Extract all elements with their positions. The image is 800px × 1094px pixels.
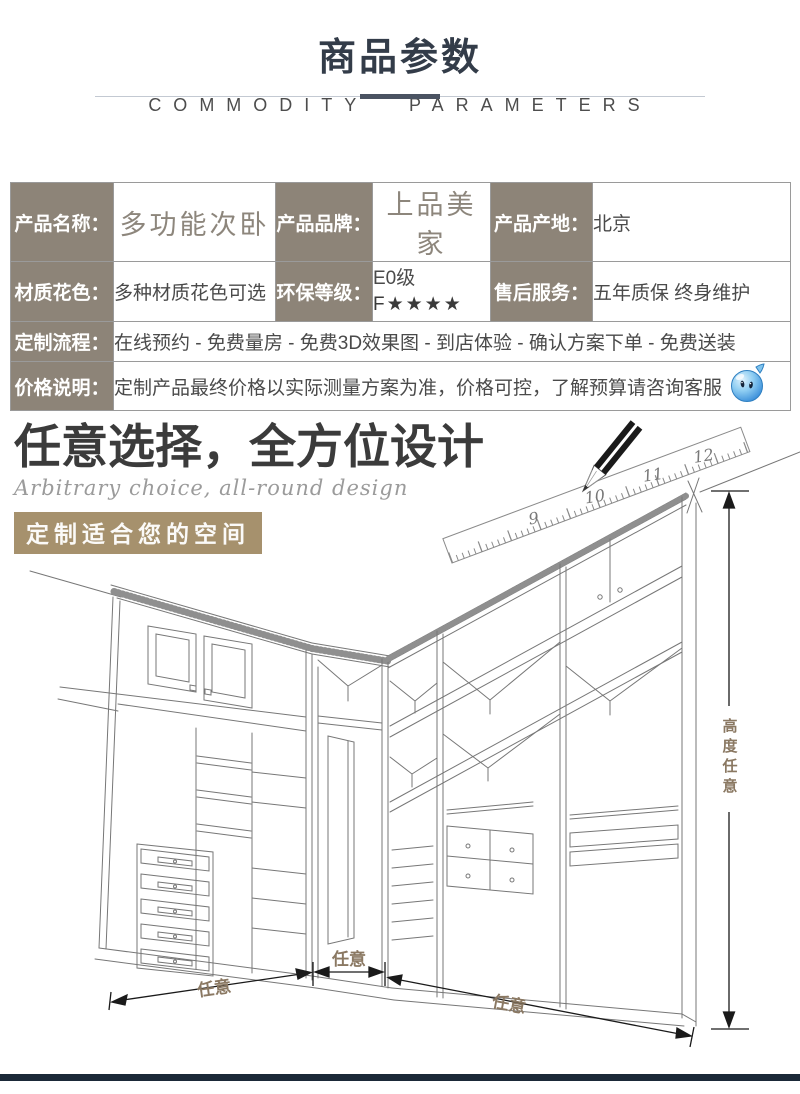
- corner-open-door: [328, 736, 354, 944]
- wide-drawer: [570, 844, 678, 866]
- dim-label-width-right: 任意: [490, 991, 528, 1017]
- wide-drawer: [570, 825, 678, 847]
- wall-line-left: [30, 571, 121, 597]
- dim-label-height: 高度任意: [721, 717, 739, 798]
- ruler-number: 11: [641, 464, 664, 486]
- footer-divider-bar: [0, 1074, 800, 1081]
- ruler-number: 12: [692, 445, 715, 467]
- dim-label-width-middle: 任意: [331, 949, 366, 969]
- wardrobe-line-drawing: 9 10 11 12 任意 任意 任意 高度任意: [0, 0, 800, 1094]
- drawer-stack: [137, 844, 213, 976]
- crown-molding-hatch-left: [114, 592, 312, 649]
- dim-label-width-left: 任意: [195, 976, 232, 1001]
- dimension-annotations: [109, 491, 749, 1047]
